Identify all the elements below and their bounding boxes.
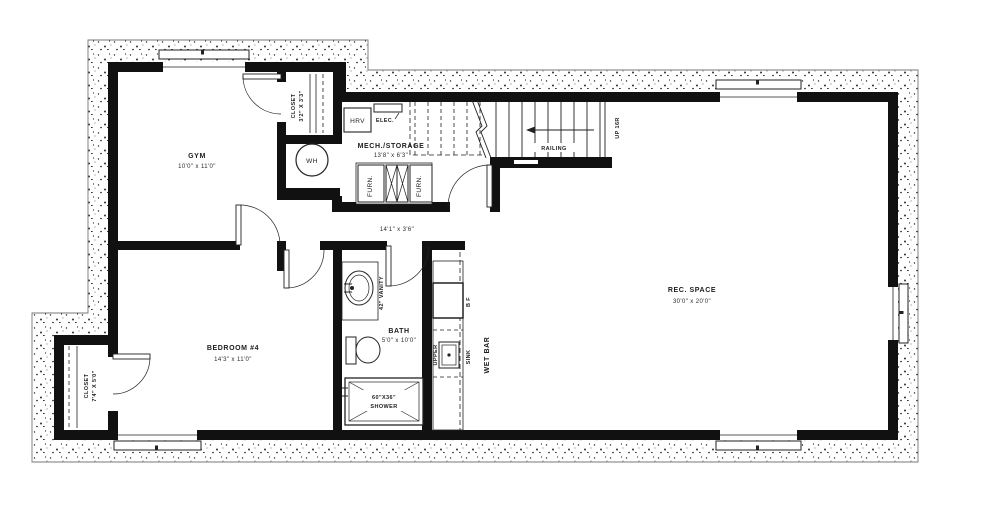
perimeter-walls [54, 62, 898, 440]
interior-floor [64, 72, 888, 430]
up-label: UP 16R [615, 117, 621, 139]
water-heater: WH [296, 144, 328, 176]
shower: 60"X36" SHOWER [342, 378, 423, 425]
shower-size: 60"X36" [372, 395, 396, 401]
hrv-unit: HRV [344, 108, 371, 132]
bar-fridge-label: B F [466, 297, 472, 307]
rec-dims: 30'0" x 20'0" [673, 299, 711, 305]
hrv-label: HRV [350, 118, 365, 125]
bedroom-dims: 14'3" x 11'0" [214, 357, 252, 363]
toilet [346, 337, 380, 364]
gym-dims: 10'0" x 11'0" [178, 164, 216, 170]
wall-closet-door-stub-bottom [108, 411, 118, 430]
gym-name: GYM [188, 153, 206, 160]
railing-label: RAILING [541, 146, 566, 152]
sink-label: SINK [466, 350, 472, 365]
bath-name: BATH [388, 328, 409, 335]
wall-closet-bottom [277, 135, 337, 144]
wall-gym-bedroom [114, 241, 240, 250]
wall-hall-south-east [320, 241, 387, 250]
bedroom-closet-name: CLOSET [84, 373, 90, 398]
wall-wetbar-north [432, 241, 465, 250]
bar-fridge [433, 283, 463, 318]
wet-bar-label: WET BAR [484, 337, 491, 374]
floor-plan-page: RAILING UP 16R GYM 10'0" x 11'0" CLOSET … [0, 0, 1006, 512]
basement-floor-plan: RAILING UP 16R GYM 10'0" x 11'0" CLOSET … [0, 0, 1006, 512]
shower-label: SHOWER [370, 404, 397, 410]
window-rec-south [716, 430, 801, 450]
bar-sink [439, 342, 459, 368]
gym-closet-dims: 3'2" X 3'3" [299, 90, 305, 121]
elec-label: ELEC. [376, 118, 394, 124]
wall-bath-west [333, 241, 342, 430]
bedroom-name: BEDROOM #4 [207, 345, 259, 352]
bedroom-closet-dims: 7'4" X 5'0" [92, 370, 98, 401]
railing-slot [514, 160, 538, 164]
upper-label: UPPER [433, 345, 439, 366]
furnace-right-label: FURN. [416, 175, 423, 197]
window-bedroom-south [114, 430, 201, 450]
wall-wh-nook-south [277, 188, 340, 200]
furnace-closet: FURN. FURN. [356, 163, 432, 204]
wall-gym-east [277, 122, 286, 190]
rec-name: REC. SPACE [668, 287, 716, 294]
wall-stair-south [490, 157, 612, 168]
gym-closet-name: CLOSET [291, 93, 297, 118]
vanity-label: 42" VANITY [379, 276, 385, 310]
mech-dims: 13'8" x 6'3" [374, 153, 408, 159]
furnace-left-label: FURN. [367, 175, 374, 197]
mech-name: MECH./STORAGE [358, 143, 425, 150]
vanity [342, 262, 378, 320]
window-rec-east [888, 284, 908, 343]
hall-dims: 14'1" x 3'6" [380, 227, 414, 233]
wall-closet-east [333, 72, 342, 144]
water-heater-label: WH [306, 158, 318, 165]
bath-dims: 5'0" x 10'0" [382, 338, 416, 344]
